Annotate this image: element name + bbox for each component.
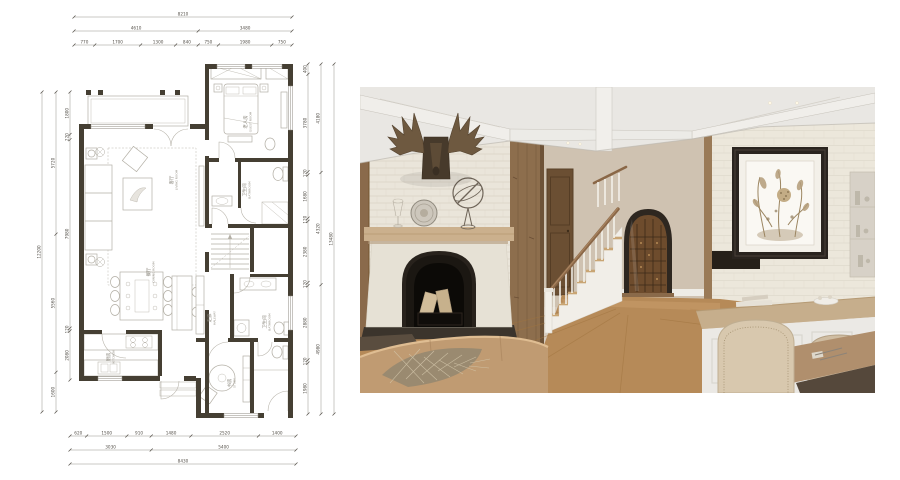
wood-corner-trim [704, 117, 712, 299]
svg-text:HALLWAY: HALLWAY [213, 311, 217, 325]
botanical-artwork [732, 147, 828, 259]
svg-text:1680: 1680 [302, 191, 307, 202]
recessed-light [567, 142, 570, 145]
svg-text:620: 620 [74, 430, 82, 435]
room-label: 书房STUDY [226, 378, 237, 388]
recessed-light [768, 101, 771, 104]
terrace-posts [86, 90, 180, 95]
svg-text:1980: 1980 [240, 39, 251, 44]
svg-text:750: 750 [278, 39, 286, 44]
svg-text:KITCHEN: KITCHEN [112, 351, 116, 364]
svg-text:3480: 3480 [240, 25, 251, 30]
svg-text:1400: 1400 [272, 430, 283, 435]
svg-text:4180: 4180 [315, 113, 320, 124]
svg-text:3030: 3030 [105, 444, 116, 449]
svg-text:1500: 1500 [101, 430, 112, 435]
room-label: 客厅LIVING ROOM [168, 169, 179, 190]
stairs [211, 234, 249, 269]
svg-text:4610: 4610 [131, 25, 142, 30]
svg-text:13480: 13480 [328, 232, 333, 246]
svg-text:910: 910 [135, 430, 143, 435]
svg-text:770: 770 [80, 39, 88, 44]
svg-text:4980: 4980 [315, 344, 320, 355]
svg-text:400: 400 [302, 65, 307, 73]
svg-text:1980: 1980 [302, 383, 307, 394]
svg-text:LIVING ROOM: LIVING ROOM [175, 169, 179, 190]
svg-text:2380: 2380 [302, 246, 307, 257]
svg-text:1700: 1700 [112, 39, 123, 44]
interior-design-board: 8210461034807701700130084075019807506201… [0, 0, 900, 480]
svg-text:5400: 5400 [218, 444, 229, 449]
svg-text:1480: 1480 [166, 430, 177, 435]
svg-text:8210: 8210 [178, 11, 189, 16]
svg-text:4320: 4320 [315, 223, 320, 234]
svg-text:5720: 5720 [50, 157, 55, 168]
svg-text:DINING ROOM: DINING ROOM [152, 261, 156, 283]
svg-text:1300: 1300 [153, 39, 164, 44]
newel-post [545, 291, 552, 333]
svg-text:5560: 5560 [50, 298, 55, 309]
room-label: 卫生间BATHROOM [261, 313, 272, 331]
wall-shelf [850, 172, 875, 277]
svg-text:GUEST ROOM: GUEST ROOM [249, 111, 253, 132]
serving-bowl [814, 297, 838, 304]
svg-text:2080: 2080 [64, 350, 69, 361]
svg-text:8430: 8430 [178, 458, 189, 463]
stone-fireplace [361, 227, 517, 340]
svg-text:220: 220 [64, 133, 69, 141]
svg-text:840: 840 [183, 39, 191, 44]
chair-front [718, 320, 794, 393]
svg-text:STUDY: STUDY [233, 378, 237, 388]
svg-text:1600: 1600 [50, 386, 55, 397]
svg-text:1800: 1800 [64, 108, 69, 119]
terrace [88, 96, 188, 126]
wine-cellar-arch-door [622, 209, 674, 297]
svg-text:12200: 12200 [36, 245, 41, 259]
room-label: 卫生间BATHROOM [241, 181, 252, 199]
svg-text:3780: 3780 [302, 117, 307, 128]
decor-plate [411, 200, 437, 226]
wood-plank-column [510, 117, 544, 362]
svg-text:BATHROOM: BATHROOM [268, 313, 272, 331]
recessed-light [579, 143, 582, 146]
svg-text:BATHROOM: BATHROOM [248, 181, 252, 199]
svg-text:7980: 7980 [64, 228, 69, 239]
svg-text:2880: 2880 [302, 317, 307, 328]
interior-render-photo [360, 87, 875, 393]
svg-text:750: 750 [204, 39, 212, 44]
floor-plan: 8210461034807701700130084075019807506201… [0, 0, 350, 480]
recessed-light [796, 102, 799, 105]
svg-text:2520: 2520 [219, 430, 230, 435]
